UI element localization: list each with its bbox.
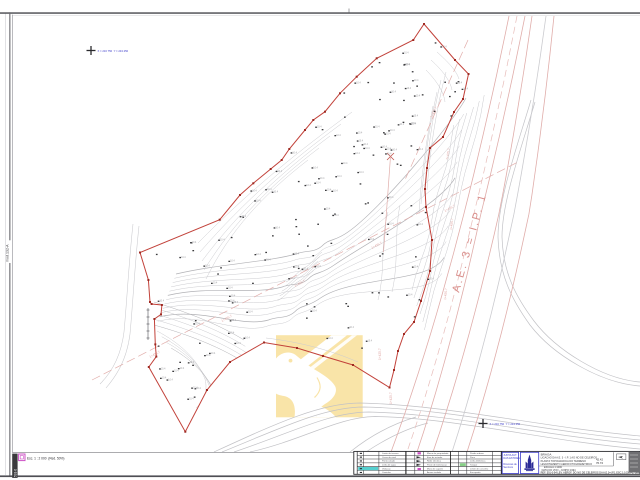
- svg-text:10.4: 10.4: [407, 88, 412, 90]
- svg-text:10.4: 10.4: [408, 295, 413, 297]
- svg-text:mod.132-A: mod.132-A: [5, 244, 9, 262]
- svg-text:10.4: 10.4: [414, 80, 419, 82]
- svg-text:10.4: 10.4: [458, 83, 463, 85]
- svg-text:10.4: 10.4: [392, 149, 397, 151]
- svg-text:76.72: 76.72: [596, 461, 603, 465]
- svg-text:10.4: 10.4: [256, 200, 261, 202]
- svg-text:10.4: 10.4: [236, 343, 241, 345]
- svg-text:10.4: 10.4: [391, 92, 396, 94]
- svg-text:10.4: 10.4: [429, 279, 434, 281]
- svg-text:10.4: 10.4: [245, 338, 250, 340]
- svg-text:1+425.7: 1+425.7: [378, 348, 382, 360]
- svg-text:10.4: 10.4: [192, 242, 197, 244]
- svg-text:10.4: 10.4: [333, 191, 338, 193]
- svg-text:10.4: 10.4: [252, 190, 257, 192]
- svg-text:10.4: 10.4: [355, 153, 360, 155]
- svg-text:10.4: 10.4: [336, 135, 341, 137]
- svg-text:10.4: 10.4: [266, 259, 271, 261]
- svg-text:Escarpado: Escarpado: [470, 471, 481, 474]
- svg-text:10.4: 10.4: [414, 116, 419, 118]
- svg-text:10.4: 10.4: [242, 216, 247, 218]
- svg-text:Poco: Poco: [470, 457, 476, 459]
- svg-text:10.4: 10.4: [205, 266, 210, 268]
- svg-text:10.4: 10.4: [290, 278, 295, 280]
- svg-text:Vedacao: Vedacao: [382, 468, 391, 470]
- svg-text:10.4: 10.4: [162, 378, 167, 380]
- svg-text:10.4: 10.4: [220, 240, 225, 242]
- svg-text:10.4: 10.4: [327, 190, 332, 192]
- svg-text:Linha telefonica: Linha telefonica: [470, 460, 486, 463]
- svg-text:10.4: 10.4: [463, 89, 468, 91]
- svg-text:10.4: 10.4: [368, 341, 373, 343]
- svg-text:10.4: 10.4: [363, 144, 368, 146]
- svg-text:10.4: 10.4: [418, 149, 423, 151]
- svg-text:10.4: 10.4: [295, 266, 300, 268]
- svg-text:10.4: 10.4: [181, 257, 186, 259]
- svg-text:Limite do terreno: Limite do terreno: [382, 452, 399, 455]
- svg-text:10.4: 10.4: [248, 312, 253, 314]
- svg-text:10.4: 10.4: [275, 227, 280, 229]
- svg-text:10.4: 10.4: [231, 296, 236, 298]
- svg-text:10.4: 10.4: [414, 267, 419, 269]
- svg-text:Caminho: Caminho: [382, 472, 392, 474]
- svg-text:10.4: 10.4: [189, 399, 194, 401]
- svg-text:REF. 591-0-94 LEV. AEROF. DO N: REF. 591-0-94 LEV. AEROF. DO NO DE CELEI…: [541, 471, 640, 474]
- svg-text:X = 216 750 Y = 243 250: X = 216 750 Y = 243 250: [490, 422, 521, 426]
- svg-text:10.4: 10.4: [389, 224, 394, 226]
- svg-text:X = 216 750 Y = 243 250: X = 216 750 Y = 243 250: [98, 49, 129, 53]
- svg-text:10.4: 10.4: [334, 215, 339, 217]
- svg-text:Ponto cotado: Ponto cotado: [382, 460, 396, 463]
- svg-text:10.4: 10.4: [320, 178, 325, 180]
- svg-text:Poste de iluminacao: Poste de iluminacao: [427, 464, 447, 467]
- svg-text:Linha de agua: Linha de agua: [382, 465, 397, 467]
- svg-text:10.4: 10.4: [343, 163, 348, 165]
- svg-text:10.4: 10.4: [228, 288, 233, 290]
- svg-text:10.4: 10.4: [404, 53, 409, 55]
- svg-text:10.4: 10.4: [386, 134, 391, 136]
- svg-text:1+425.7: 1+425.7: [389, 392, 393, 404]
- svg-text:10.4: 10.4: [387, 149, 392, 151]
- svg-text:10.4: 10.4: [406, 64, 411, 66]
- svg-text:10.4: 10.4: [337, 176, 342, 178]
- svg-text:591-0: 591-0: [13, 469, 17, 477]
- svg-text:Marco de propriedade: Marco de propriedade: [427, 452, 449, 455]
- svg-text:10.4: 10.4: [416, 95, 421, 97]
- svg-text:10.4: 10.4: [365, 148, 370, 150]
- svg-text:Eixo de estrada: Eixo de estrada: [427, 456, 443, 459]
- svg-text:10.4: 10.4: [418, 224, 423, 226]
- svg-text:10.4: 10.4: [213, 283, 218, 285]
- svg-text:Predio urbano: Predio urbano: [470, 452, 485, 455]
- svg-text:10.4: 10.4: [160, 301, 165, 303]
- svg-text:Tanque: Tanque: [470, 465, 478, 467]
- svg-text:10.4: 10.4: [230, 333, 235, 335]
- svg-text:10.4: 10.4: [316, 183, 321, 185]
- svg-text:10.4: 10.4: [267, 189, 272, 191]
- svg-text:10.4: 10.4: [389, 197, 394, 199]
- svg-text:10.4: 10.4: [316, 266, 321, 268]
- svg-text:Servicos: Servicos: [503, 466, 513, 469]
- svg-text:10.4: 10.4: [313, 167, 318, 169]
- svg-text:10.4: 10.4: [206, 355, 211, 357]
- svg-text:10.4: 10.4: [303, 269, 308, 271]
- svg-text:10.4: 10.4: [306, 185, 311, 187]
- svg-text:10.4: 10.4: [230, 300, 235, 302]
- svg-text:10.4: 10.4: [292, 152, 297, 154]
- svg-text:10.4: 10.4: [326, 208, 331, 210]
- svg-text:10.4: 10.4: [400, 124, 405, 126]
- svg-text:10.4: 10.4: [317, 127, 322, 129]
- svg-text:10.4: 10.4: [195, 323, 200, 325]
- svg-text:10.4: 10.4: [168, 379, 173, 381]
- svg-text:10.4: 10.4: [230, 261, 235, 263]
- svg-text:10.4: 10.4: [274, 192, 279, 194]
- svg-text:10.4: 10.4: [196, 388, 201, 390]
- svg-text:10.4: 10.4: [359, 172, 364, 174]
- svg-text:10.4: 10.4: [359, 140, 364, 142]
- svg-text:10.4: 10.4: [358, 132, 363, 134]
- svg-text:Curva de nivel: Curva de nivel: [382, 456, 396, 459]
- svg-text:Arvore isolada: Arvore isolada: [427, 471, 442, 474]
- svg-text:10.4: 10.4: [387, 153, 392, 155]
- svg-text:10.4: 10.4: [390, 130, 395, 132]
- svg-text:10.4: 10.4: [278, 171, 283, 173]
- svg-text:Rede electrica: Rede electrica: [427, 460, 442, 463]
- svg-text:Esc. 1 : 2 000 (Red. 50%): Esc. 1 : 2 000 (Red. 50%): [27, 456, 64, 460]
- svg-text:10.4: 10.4: [442, 46, 447, 48]
- svg-text:10.4: 10.4: [349, 327, 354, 329]
- svg-text:10.4: 10.4: [174, 371, 179, 373]
- svg-text:10.4: 10.4: [375, 126, 380, 128]
- svg-text:10.4: 10.4: [180, 368, 185, 370]
- svg-text:10.4: 10.4: [328, 338, 333, 340]
- svg-text:10.4: 10.4: [161, 368, 166, 370]
- svg-text:10.4: 10.4: [312, 311, 317, 313]
- svg-text:10.4: 10.4: [370, 239, 375, 241]
- svg-text:10.4: 10.4: [232, 320, 237, 322]
- svg-text:10.4: 10.4: [295, 253, 300, 255]
- svg-text:Muro de suporte: Muro de suporte: [427, 467, 444, 470]
- svg-text:10.4: 10.4: [211, 353, 216, 355]
- svg-text:10.4: 10.4: [256, 254, 261, 256]
- svg-text:Limite de concelho: Limite de concelho: [470, 467, 489, 470]
- svg-text:10.4: 10.4: [411, 123, 416, 125]
- svg-text:10.4: 10.4: [356, 83, 361, 85]
- svg-text:10.4: 10.4: [234, 302, 239, 304]
- svg-text:10.4: 10.4: [190, 362, 195, 364]
